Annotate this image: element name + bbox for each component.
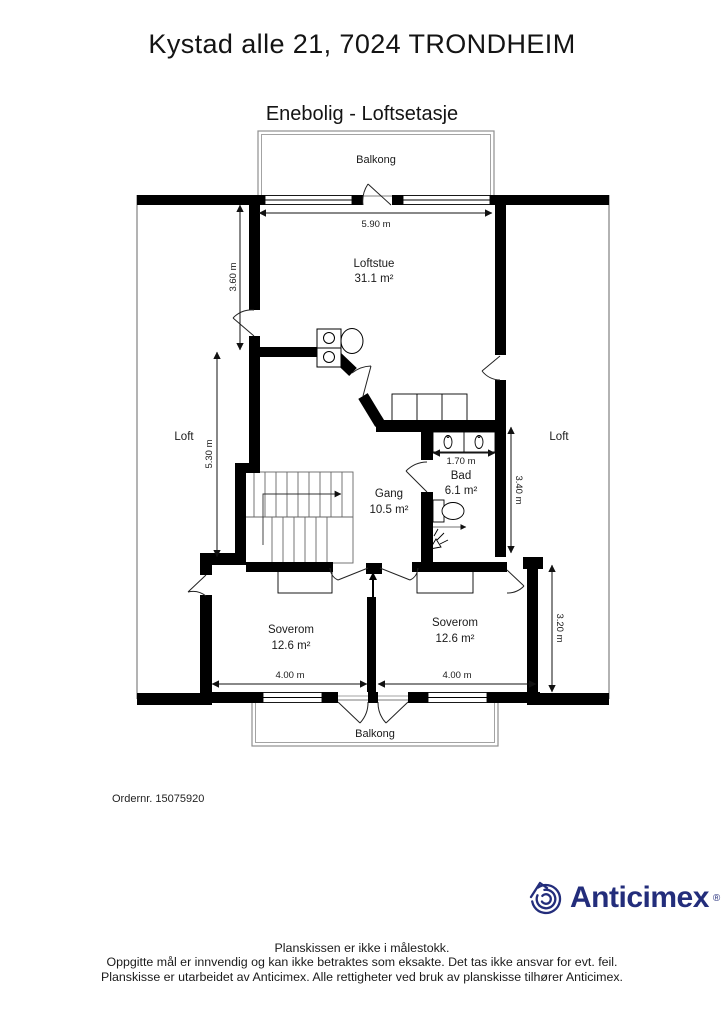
room-area-soverom-left: 12.6 m²: [272, 640, 311, 652]
dim-bad-width: 1.70 m: [446, 456, 475, 467]
top-balcony-label: Balkong: [356, 154, 396, 166]
room-area-soverom-right: 12.6 m²: [436, 633, 475, 645]
bottom-balcony-label: Balkong: [355, 728, 395, 740]
door-bedroom-left-entry: [330, 568, 368, 580]
door-bad: [406, 462, 427, 492]
anticimex-logo: Anticimex®: [526, 878, 720, 918]
stairs: [243, 472, 353, 563]
floorplan-svg: Balkong Balkong: [0, 0, 724, 790]
vanity-sinks-icon: [433, 432, 495, 452]
room-area-gang: 10.5 m²: [370, 504, 409, 516]
window: [403, 196, 490, 205]
order-number: Ordernr. 15075920: [112, 793, 204, 805]
window: [428, 693, 487, 703]
window: [265, 196, 352, 205]
room-label-gang: Gang: [375, 488, 403, 500]
room-label-soverom-right: Soverom: [432, 617, 478, 629]
room-label-soverom-left: Soverom: [268, 624, 314, 636]
door-loftstue-right: [482, 356, 500, 380]
dim-loftstue-width: 5.90 m: [361, 219, 390, 230]
loft-left-label: Loft: [174, 431, 194, 443]
loft-right-label: Loft: [549, 431, 569, 443]
dim-soverom-right-width: 4.00 m: [442, 670, 471, 681]
dim-soverom-height: 3.20 m: [554, 613, 565, 642]
top-balcony: Balkong: [258, 131, 494, 196]
door-bedroom-right-loft: [507, 570, 524, 593]
door-loftstue-left: [233, 310, 254, 336]
room-label-bad: Bad: [451, 470, 471, 482]
registered-mark: ®: [713, 893, 720, 904]
footer-line-3: Planskisse er utarbeidet av Anticimex. A…: [0, 970, 724, 984]
dim-loftstue-height: 3.60 m: [228, 262, 239, 291]
footer-line-1: Planskissen er ikke i målestokk.: [0, 941, 724, 955]
loftstue-closet: [392, 394, 467, 421]
door-bedroom-left-loft: [188, 575, 206, 596]
dim-gang-height: 5.30 m: [204, 439, 215, 468]
room-label-loftstue: Loftstue: [354, 258, 395, 270]
door-loftstue-gang: [352, 366, 371, 396]
room-area-bad: 6.1 m²: [445, 485, 478, 497]
anticimex-swirl-icon: [526, 878, 566, 918]
bottom-balcony: Balkong: [252, 696, 498, 746]
room-area-loftstue: 31.1 m²: [355, 273, 394, 285]
footer-disclaimer: Planskissen er ikke i målestokk. Oppgitt…: [0, 941, 724, 984]
footer-line-2: Oppgitte mål er innvendig og kan ikke be…: [0, 955, 724, 969]
dim-bad-height: 3.40 m: [513, 475, 524, 504]
anticimex-wordmark: Anticimex: [570, 881, 709, 915]
dim-soverom-left-width: 4.00 m: [275, 670, 304, 681]
fireplace-icon: [317, 329, 363, 368]
window: [263, 693, 322, 703]
toilet-icon: [433, 500, 464, 522]
